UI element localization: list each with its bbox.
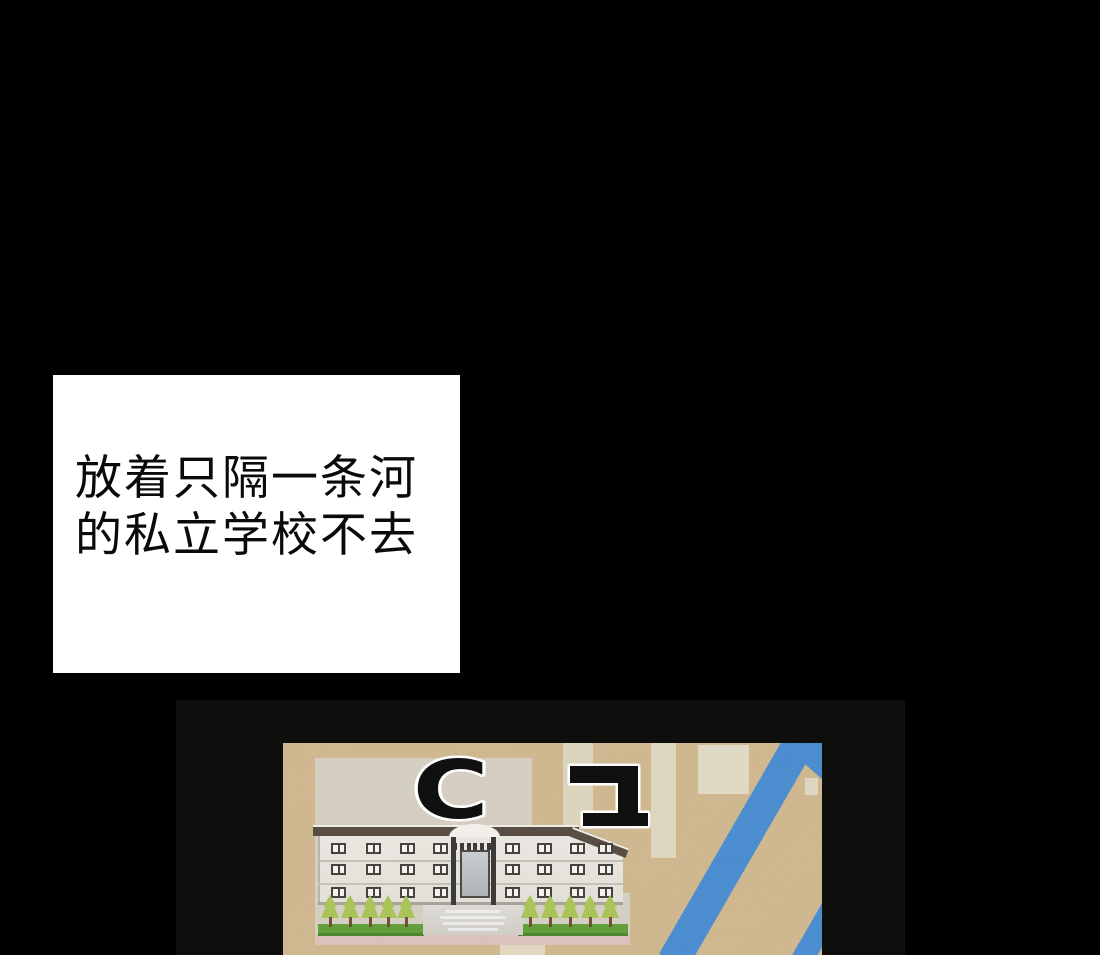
map-block-small-d [805, 778, 818, 795]
front-walkway [423, 905, 523, 935]
tree [521, 895, 539, 927]
map-path-below [500, 945, 545, 955]
river-road-second [785, 863, 822, 955]
comic-page: 放着只隔一条河 的私立学校不去 [0, 0, 1100, 955]
comic-panel: C [176, 700, 905, 955]
tree [379, 895, 397, 927]
entrance-transom-windows [453, 842, 491, 850]
map-block-small-c [698, 745, 749, 794]
school-map: C [283, 743, 822, 955]
tree [321, 895, 339, 927]
school-label-latin-c: C [413, 744, 489, 837]
tree [341, 895, 359, 927]
school-label-go-glyph [570, 766, 648, 826]
map-road-strip [315, 935, 630, 945]
tree [581, 895, 599, 927]
entrance-door [460, 850, 490, 898]
caption-line-2: 的私立学校不去 [75, 505, 450, 566]
entrance-column [491, 837, 496, 905]
tree [561, 895, 579, 927]
tree [397, 895, 415, 927]
caption-line-1: 放着只隔一条河 [75, 448, 450, 509]
tree [541, 895, 559, 927]
caption-box: 放着只隔一条河 的私立学校不去 [53, 375, 460, 673]
map-block-column-b [651, 743, 676, 858]
tree [601, 895, 619, 927]
school-label: C [410, 756, 650, 828]
tree [361, 895, 379, 927]
